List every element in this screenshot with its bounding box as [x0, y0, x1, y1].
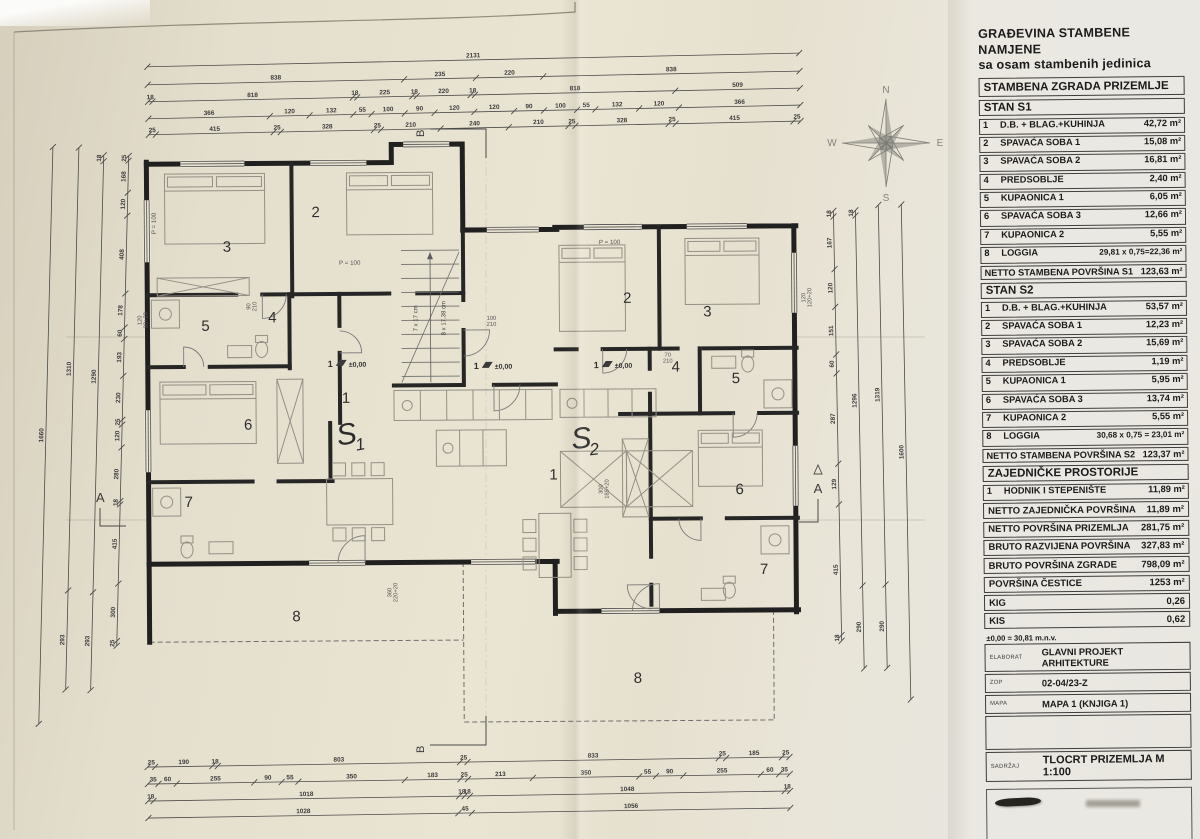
kitchen-sink [402, 400, 412, 410]
row-value: 15,08 m² [1144, 136, 1181, 146]
dim-value: 168 [121, 171, 128, 182]
dim-value: 2131 [466, 52, 481, 59]
bath-sink [701, 588, 725, 600]
dim-value: 25 [460, 755, 468, 762]
door-size-label: 70210 [663, 353, 673, 365]
parapet-label: P = 100 [339, 260, 361, 267]
room-number: 1 [594, 360, 599, 370]
bed-pillow [210, 385, 253, 395]
summary-row: BRUTO RAZVIJENA POVRŠINA327,83 m² [983, 538, 1189, 556]
bed-pillow [594, 248, 622, 258]
dim-value: 220 [504, 70, 515, 77]
compass-rose: NESW [827, 85, 943, 204]
bed-blanket-line [685, 255, 759, 256]
section-b-line [430, 716, 486, 745]
dim-value: 185 [749, 750, 760, 757]
dim-value: 293 [59, 634, 66, 645]
area-row: 5KUPAONICA 16,05 m² [980, 190, 1186, 209]
dimension-chain-right: 1600131929018129629018167120151602871294… [826, 201, 914, 703]
sheet-title-line1: GRAĐEVINA STAMBENE NAMJENE [978, 25, 1184, 58]
bed-pillow [688, 241, 720, 251]
row-value: 1,19 m² [1151, 356, 1183, 366]
row-num: 3 [983, 156, 1000, 166]
row-value: 12,23 m² [1146, 319, 1183, 329]
bath-sink [712, 356, 736, 368]
dim-value: 25 [109, 639, 116, 647]
shower [764, 380, 792, 408]
summary-value: 0,26 [1166, 595, 1185, 606]
room-number: 5 [201, 318, 209, 335]
area-row: 7KUPAONICA 25,55 m² [980, 227, 1186, 246]
dim-value: 18 [113, 498, 120, 506]
illegible-print [1086, 800, 1140, 807]
summary-row: POVRŠINA ČESTICE1253 m² [984, 575, 1190, 593]
toilet [742, 356, 754, 372]
dim-value: 290 [879, 620, 886, 631]
row-num: 6 [986, 394, 1003, 404]
bed-pillow [724, 241, 756, 251]
row-num: 5 [984, 193, 1001, 203]
bath-sink [209, 542, 233, 554]
shower-drain [769, 534, 781, 546]
info-row-zop: ZOP02-04/23-Z [985, 672, 1191, 693]
bed-pillow [167, 177, 212, 187]
summary-row: BRUTO POVRŠINA ZGRADE798,09 m² [984, 556, 1190, 574]
dim-value: 120 [114, 430, 121, 441]
dim-value: 18 [834, 634, 841, 642]
dim-value: 55 [359, 107, 367, 114]
summary-value: 1253 m² [1149, 577, 1185, 588]
shower-drain [159, 308, 171, 320]
toilet [256, 341, 268, 357]
row-label: PREDSOBLJE [1001, 173, 1147, 185]
dim-line [91, 155, 104, 690]
summary-row: NETTO POVRŠINA PRIZEMLJA281,75 m² [983, 519, 1189, 537]
door-size-bottom: 210 [252, 302, 258, 312]
netto-s2-row: NETTO STAMBENA POVRŠINA S2123,37 m² [982, 447, 1188, 463]
dim-value: 25 [719, 750, 727, 757]
shower [761, 526, 789, 554]
compass-hub [884, 141, 888, 145]
dim-value: 18 [784, 783, 792, 790]
dim-value: 25 [374, 122, 382, 129]
area-row: 2SPAVAĆA SOBA 112,23 m² [981, 318, 1187, 337]
chair [371, 463, 384, 476]
scanned-floor-plan-sheet: 7 x 17 cm8 x 17,38 cm 32546782345678111±… [0, 0, 1200, 839]
stan-s2-heading: STAN S2 [981, 280, 1187, 298]
summary-value: 0,62 [1167, 614, 1186, 625]
summary-label: BRUTO POVRŠINA ZGRADE [989, 559, 1142, 572]
dim-value: 151 [828, 325, 835, 336]
room-number: 1 [328, 359, 333, 369]
dim-value: 255 [210, 775, 221, 782]
summary-value: 327,83 m² [1141, 540, 1184, 551]
bed [160, 381, 256, 444]
dim-line [148, 71, 800, 85]
dim-value: 100 [383, 106, 394, 113]
info-key: SADRŽAJ [991, 763, 1043, 770]
info-row-sadrzaj: SADRŽAJTLOCRT PRIZEMLJA M 1:100 [986, 750, 1192, 782]
unit-label-index: 1 [354, 434, 367, 454]
netto-label: NETTO STAMBENA POVRŠINA S2 [986, 449, 1142, 461]
kitchen-sink [443, 443, 453, 453]
dim-value: 328 [617, 117, 628, 124]
stair-direction-arrow [427, 252, 433, 259]
room-number: 2 [311, 204, 319, 221]
area-row: 1D.B. + BLAG.+KUHINJA53,57 m² [981, 299, 1187, 318]
bed [346, 172, 432, 235]
netto-value: 123,37 m² [1143, 449, 1185, 459]
dim-value: 18 [96, 154, 103, 162]
room-number: 7 [760, 561, 768, 578]
row-label: SPAVAĆA SOBA 1 [1000, 136, 1141, 147]
row-num: 2 [985, 321, 1002, 331]
row-label: SPAVAĆA SOBA 1 [1002, 319, 1143, 330]
dim-value: 60 [766, 767, 774, 774]
chair [333, 528, 346, 541]
bath-sink [228, 346, 252, 358]
dim-value: 178 [117, 305, 124, 316]
row-label: D.B. + BLAG.+KUHINJA [1000, 118, 1141, 129]
info-value: TLOCRT PRIZEMLJA M 1:100 [1043, 753, 1187, 779]
info-value: 02-04/23-Z [1042, 676, 1186, 689]
dim-value: 366 [734, 99, 745, 106]
door-swing [340, 331, 362, 353]
dim-value: 18 [351, 90, 359, 97]
door-swing [627, 585, 651, 609]
dim-line [148, 757, 790, 767]
info-value: MAPA 1 (KNJIGA 1) [1042, 697, 1186, 710]
dim-value: 190 [178, 759, 189, 766]
row-num: 3 [985, 339, 1002, 349]
room-number: 5 [732, 370, 740, 387]
dim-value: 293 [84, 635, 91, 646]
area-row: 1D.B. + BLAG.+KUHINJA42,72 m² [979, 116, 1185, 135]
stan-s1-heading: STAN S1 [979, 97, 1185, 115]
door-size-label: 300185+20 [599, 479, 611, 499]
dim-value: 25 [274, 124, 282, 131]
summary-row: KIG0,26 [984, 593, 1190, 611]
dim-value: 18 [411, 89, 419, 96]
level-flag [602, 361, 613, 367]
dim-value: 328 [322, 123, 333, 130]
shower [153, 488, 181, 516]
dim-value: 290 [856, 621, 863, 632]
door-arc [494, 385, 520, 411]
door-size-label: 12090+20 [137, 312, 149, 328]
dim-value: 18 [211, 758, 219, 765]
section-b-label: B [415, 746, 427, 753]
row-num: 1 [985, 302, 1002, 312]
summary-label: NETTO POVRŠINA PRIZEMLJA [988, 522, 1141, 535]
door-size-label: 90210 [246, 302, 258, 312]
dim-value: 25 [782, 749, 790, 756]
empty-stamp-box [986, 787, 1193, 839]
level-value: ±0,00 [495, 364, 513, 371]
section-a-label: A [814, 481, 823, 496]
dim-value: 415 [833, 564, 840, 575]
row-value: 6,05 m² [1150, 191, 1182, 201]
common-areas-heading: ZAJEDNIČKE PROSTORIJE [983, 464, 1189, 482]
row-label: LOGGIA [1003, 430, 1093, 441]
door-swing [184, 347, 204, 367]
compass-w: W [827, 138, 837, 149]
bed-blanket-line [160, 398, 256, 399]
info-key: MAPA [990, 701, 1042, 708]
row-label: KUPAONICA 2 [1003, 411, 1149, 423]
furniture [150, 170, 793, 604]
dim-value: 838 [270, 74, 281, 81]
room-number: 8 [292, 608, 300, 625]
chair [352, 463, 365, 476]
door-size-bottom: 220+20 [393, 583, 399, 603]
area-row: 2SPAVAĆA SOBA 115,08 m² [979, 135, 1185, 154]
summary-label: BRUTO RAZVIJENA POVRŠINA [988, 541, 1141, 554]
dim-value: 25 [115, 418, 122, 426]
dim-value: 838 [666, 66, 677, 73]
bed-blanket-line [165, 190, 265, 191]
dim-value: 1660 [38, 428, 45, 443]
door-size-bottom: 90+20 [143, 312, 149, 328]
dim-value: 287 [830, 413, 837, 424]
row-value: 5,55 m² [1152, 411, 1184, 421]
dim-value: 60 [829, 360, 836, 368]
door-size-label: 360220+20 [387, 583, 399, 603]
dim-value: 1048 [620, 786, 635, 793]
dim-value: 18 [147, 94, 155, 101]
row-value: 42,72 m² [1144, 117, 1181, 127]
info-value: GLAVNI PROJEKT ARHITEKTURE [1041, 645, 1185, 669]
door-arc [627, 585, 651, 609]
dim-line [833, 211, 841, 641]
row-value: 29,81 x 0,75=22,36 m² [1099, 247, 1182, 257]
room-number: 4 [268, 309, 276, 326]
dim-value: 1296 [851, 393, 858, 408]
dim-value: 235 [435, 71, 446, 78]
dim-value: 120 [449, 105, 460, 112]
row-num: 2 [983, 138, 1000, 148]
row-value: 13,74 m² [1147, 392, 1184, 402]
netto-s1-row: NETTO STAMBENA POVRŠINA S1123,63 m² [980, 263, 1186, 279]
dim-value: 25 [121, 154, 128, 162]
dim-value: 25 [149, 127, 157, 134]
section-a-arrow [814, 465, 822, 474]
dim-value: 120 [827, 282, 834, 293]
stair-annotation: 7 x 17 cm [413, 305, 419, 331]
dim-value: 408 [119, 249, 126, 260]
row-num: 7 [984, 230, 1001, 240]
bed-pillow [732, 433, 759, 443]
room-number: 6 [244, 417, 252, 434]
dim-value: 183 [427, 772, 438, 779]
room-number: 1 [342, 390, 350, 407]
dim-value: 55 [286, 774, 294, 781]
bed-pillow [349, 176, 387, 186]
area-row: 5KUPAONICA 15,95 m² [982, 373, 1188, 392]
room-number: 1 [474, 361, 479, 371]
bed-pillow [163, 385, 206, 395]
area-row: 8LOGGIA30,68 x 0,75 = 23,01 m² [982, 428, 1188, 447]
chair [332, 463, 345, 476]
row-num: 5 [986, 376, 1003, 386]
dim-value: 25 [461, 772, 469, 779]
summary-label: NETTO ZAJEDNIČKA POVRŠINA [988, 504, 1147, 517]
door-size-bottom: 210 [663, 359, 673, 365]
row-value: 5,55 m² [1150, 228, 1182, 238]
dim-value: 193 [116, 351, 123, 362]
door-arc [184, 347, 204, 367]
dim-value: 225 [379, 89, 390, 96]
room-number: 8 [634, 670, 642, 687]
loggia-dashed-boundaries [149, 560, 774, 724]
area-row: 7KUPAONICA 25,55 m² [982, 410, 1188, 429]
dim-value: 35 [781, 766, 789, 773]
row-num: 6 [984, 211, 1001, 221]
room-number: 7 [184, 494, 192, 511]
room-number: 6 [735, 481, 743, 498]
row-value: 30,68 x 0,75 = 23,01 m² [1097, 430, 1185, 440]
kitchen-counter [436, 430, 506, 466]
compass-e: E [937, 138, 944, 149]
area-row: 3SPAVAĆA SOBA 215,69 m² [981, 336, 1187, 355]
row-value: 12,66 m² [1145, 209, 1182, 219]
room-number: 3 [223, 239, 231, 256]
area-row: 1HODNIK I STEPENIŠTE11,89 m² [983, 483, 1189, 502]
row-label: SPAVAĆA SOBA 3 [1001, 210, 1142, 221]
row-value: 5,95 m² [1152, 374, 1184, 384]
stair-annotation: 8 x 17,38 cm [441, 301, 447, 335]
dim-value: 803 [333, 756, 344, 763]
dim-value: 280 [113, 468, 120, 479]
dim-value: 1018 [299, 791, 314, 798]
area-row: 4PREDSOBLJE2,40 m² [980, 172, 1186, 191]
door-size-bottom: 120+20 [807, 288, 813, 308]
dimension-chain-left: 1660131029318129029325168120408178601932… [31, 144, 132, 729]
dim-value: 366 [204, 110, 215, 117]
sheet-subtitle: STAMBENA ZGRADA PRIZEMLJE [979, 75, 1185, 96]
dim-value: 818 [247, 92, 258, 99]
dim-value: 1310 [66, 361, 73, 376]
row-label: KUPAONICA 1 [1003, 374, 1149, 386]
chair [523, 538, 536, 551]
door-size-bottom: 210 [487, 322, 497, 328]
sheet-frame-line [14, 2, 575, 32]
info-key: ELABORAT [990, 654, 1042, 661]
shower [151, 300, 179, 328]
info-key: ZOP [990, 680, 1042, 687]
compass-s: S [883, 193, 890, 204]
door-arc [679, 518, 701, 540]
room-number: 4 [672, 359, 680, 376]
title-block-panel: GRAĐEVINA STAMBENE NAMJENE sa osam stamb… [966, 0, 1194, 839]
paper-fold-shadow [560, 0, 594, 839]
dim-value: 1028 [296, 808, 311, 815]
dim-value: 300 [110, 606, 117, 617]
bed [685, 238, 759, 305]
netto-value: 123,63 m² [1141, 265, 1183, 275]
level-value: ±0,00 [349, 362, 367, 369]
sheet-title: GRAĐEVINA STAMBENE NAMJENE sa osam stamb… [978, 25, 1184, 74]
room-labels: 32546782345678111±0,001±0,001±0,00S1S2P … [137, 201, 816, 691]
row-num: 7 [986, 413, 1003, 423]
dim-value: 230 [115, 392, 122, 403]
row-value: 16,81 m² [1144, 154, 1181, 164]
dim-value: 120 [284, 108, 295, 115]
dim-value: 120 [654, 100, 665, 107]
dim-value: 509 [732, 82, 743, 89]
summary-row: NETTO ZAJEDNIČKA POVRŠINA11,89 m² [983, 501, 1189, 519]
bed [164, 173, 264, 244]
door-size-label: 100210 [487, 316, 497, 328]
dim-value: 210 [405, 122, 416, 129]
row-label: PREDSOBLJE [1002, 356, 1148, 368]
dim-line [66, 148, 79, 690]
compass-n: N [882, 85, 889, 96]
dim-value: 25 [793, 114, 801, 121]
unit-script-label: S1 [334, 416, 367, 458]
dim-line [878, 205, 887, 668]
dim-value: 240 [469, 120, 480, 127]
area-row: 8LOGGIA29,81 x 0,75=22,36 m² [980, 245, 1186, 264]
dim-value: 213 [495, 771, 506, 778]
row-value: 53,57 m² [1146, 300, 1183, 310]
dim-value: 18 [469, 87, 477, 94]
dim-value: 167 [826, 237, 833, 248]
dim-value: 45 [461, 806, 469, 813]
chair [372, 528, 385, 541]
summary-label: POVRŠINA ČESTICE [989, 577, 1150, 590]
area-row: 4PREDSOBLJE1,19 m² [981, 355, 1187, 374]
row-label: LOGGIA [1001, 247, 1096, 258]
door-size-bottom: 185+20 [605, 479, 611, 499]
dimension-chain-top: 2131838235220838188181822518220188185093… [144, 46, 803, 138]
dim-value: 415 [209, 126, 220, 133]
summary-label: KIS [989, 614, 1167, 627]
summary-row: KIS0,62 [984, 611, 1190, 629]
area-row: 6SPAVAĆA SOBA 313,74 m² [982, 391, 1188, 410]
room-number: 3 [703, 303, 711, 320]
room-number: 2 [623, 290, 631, 307]
dim-value: 18 [848, 209, 855, 217]
dim-value: 18 [147, 793, 155, 800]
section-a-line [100, 508, 126, 526]
dim-value: 35 [150, 776, 158, 783]
dim-value: 90 [525, 103, 533, 110]
row-num: 4 [984, 174, 1001, 184]
row-value: 11,89 m² [1148, 484, 1185, 494]
door-swing [679, 518, 701, 540]
info-row-mapa: MAPAMAPA 1 (KNJIGA 1) [985, 693, 1191, 714]
dim-value: 90 [416, 105, 424, 112]
dim-line [148, 774, 790, 784]
stair-walk-line [430, 252, 431, 382]
dim-value: 220 [438, 88, 449, 95]
section-b-label: B [415, 130, 427, 137]
dim-value: 18 [826, 210, 833, 218]
level-value: ±0,00 [615, 363, 633, 370]
room-number: 1 [549, 466, 557, 483]
dim-line [148, 808, 790, 818]
parapet-label: P = 100 [599, 239, 621, 246]
area-row: 6SPAVAĆA SOBA 312,66 m² [980, 208, 1186, 227]
row-num: 1 [983, 119, 1000, 129]
dim-value: 90 [264, 775, 272, 782]
row-value: 15,69 m² [1146, 337, 1183, 347]
dim-value: 90 [666, 768, 674, 775]
row-num: 8 [986, 431, 1003, 441]
level-flag [482, 362, 493, 368]
dim-line [855, 210, 864, 668]
